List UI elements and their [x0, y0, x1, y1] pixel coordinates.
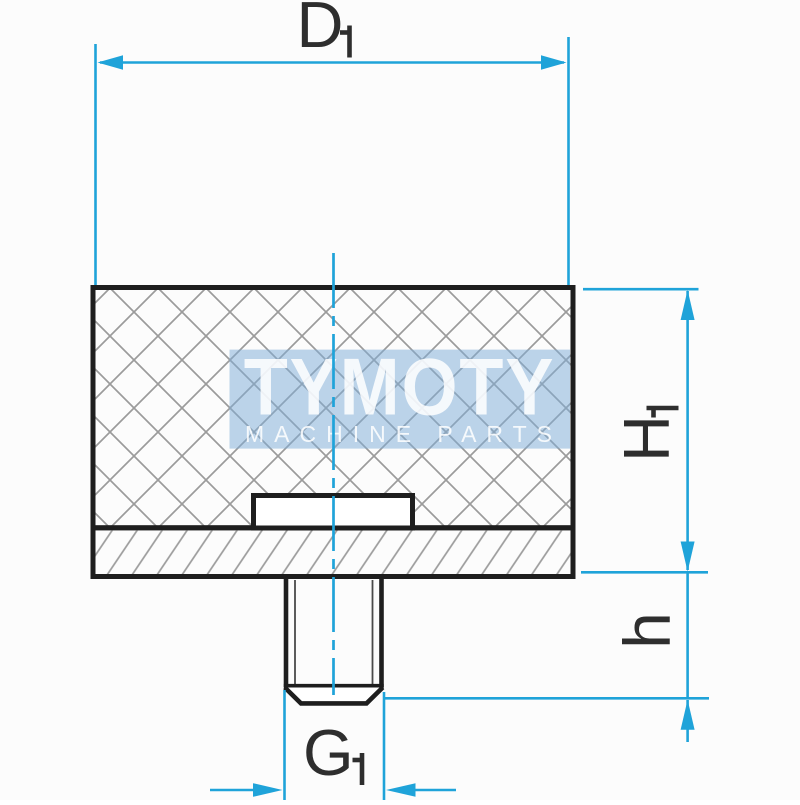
svg-text:MACHINE PARTS: MACHINE PARTS: [245, 421, 562, 447]
svg-text:TYMOTY: TYMOTY: [244, 343, 556, 433]
svg-text:D: D: [297, 0, 344, 61]
svg-text:G: G: [303, 716, 354, 789]
svg-text:H: H: [610, 415, 683, 462]
svg-text:h: h: [610, 612, 684, 649]
